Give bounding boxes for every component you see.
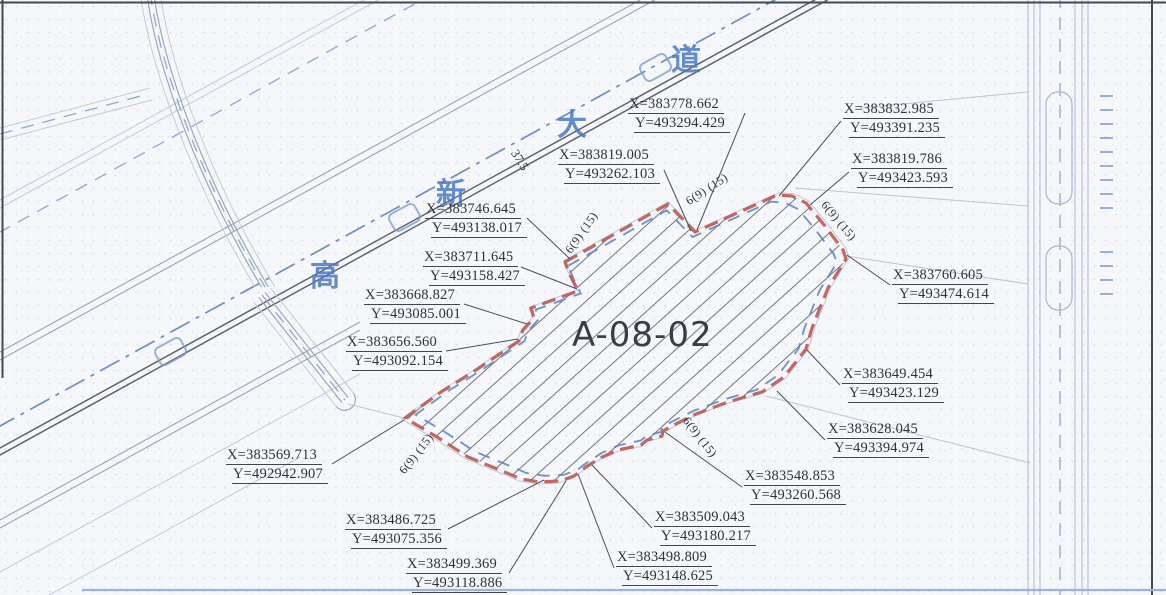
coordinate-y: Y=493260.568 xyxy=(750,486,846,505)
coordinate-label: X=383499.369 Y=493118.886 xyxy=(406,555,507,593)
road-name-char-da: 大 xyxy=(557,100,587,144)
coordinate-x: X=383649.454 xyxy=(842,365,938,384)
east-road-lines xyxy=(1028,0,1113,595)
coordinate-y: Y=493423.593 xyxy=(857,169,953,188)
coordinate-label: X=383569.713 Y=492942.907 xyxy=(226,446,328,484)
coordinate-y: Y=493148.625 xyxy=(622,567,718,586)
coordinate-x: X=383569.713 xyxy=(226,446,322,465)
coordinate-y: Y=493423.129 xyxy=(848,384,944,403)
coordinate-x: X=383832.985 xyxy=(843,100,939,119)
coordinate-x: X=383760.605 xyxy=(892,266,988,285)
median-island xyxy=(1046,246,1072,310)
coordinate-y: Y=493075.356 xyxy=(351,530,447,549)
coordinate-label: X=383509.043 Y=493180.217 xyxy=(654,508,756,546)
coordinate-x: X=383778.662 xyxy=(628,95,724,114)
parcel-id-label: A-08-02 xyxy=(572,315,713,355)
site-plan-drawing: A-08-02 高 新 大 道 37.5 6(9) (15) 6(9) (15)… xyxy=(0,0,1166,595)
coordinate-x: X=383498.809 xyxy=(616,548,712,567)
coordinate-x: X=383486.725 xyxy=(345,511,441,530)
coordinate-y: Y=493158.427 xyxy=(429,267,525,286)
coordinate-x: X=383499.369 xyxy=(406,555,502,574)
coordinate-x: X=383819.786 xyxy=(851,150,947,169)
coordinate-label: X=383628.045 Y=493394.974 xyxy=(827,420,929,458)
stub-road-end-cap xyxy=(336,393,355,410)
coordinate-label: X=383711.645 Y=493158.427 xyxy=(423,248,525,286)
west-branch-road-lines xyxy=(0,88,152,140)
coordinate-y: Y=493391.235 xyxy=(849,119,945,138)
coordinate-y: Y=493138.017 xyxy=(431,219,527,238)
road-name-char-dao: 道 xyxy=(671,35,701,79)
coordinate-label: X=383498.809 Y=493148.625 xyxy=(616,548,718,586)
coordinate-y: Y=493262.103 xyxy=(564,165,660,184)
coordinate-y: Y=493394.974 xyxy=(833,439,929,458)
coordinate-x: X=383711.645 xyxy=(423,248,518,267)
coordinate-y: Y=493085.001 xyxy=(370,305,466,324)
coordinate-y: Y=493294.429 xyxy=(634,114,730,133)
coordinate-x: X=383628.045 xyxy=(827,420,923,439)
coordinate-y: Y=493118.886 xyxy=(412,574,507,593)
coordinate-x: X=383746.645 xyxy=(425,200,521,219)
coordinate-label: X=383778.662 Y=493294.429 xyxy=(628,95,730,133)
coordinate-x: X=383656.560 xyxy=(346,333,442,352)
coordinate-x: X=383509.043 xyxy=(654,508,750,527)
crosswalk-ladder-marks xyxy=(1100,96,1113,294)
coordinate-y: Y=493092.154 xyxy=(352,352,448,371)
coordinate-x: X=383668.827 xyxy=(364,286,460,305)
coordinate-label: X=383819.005 Y=493262.103 xyxy=(558,146,660,184)
coordinate-x: X=383819.005 xyxy=(558,146,654,165)
coordinate-label: X=383668.827 Y=493085.001 xyxy=(364,286,466,324)
median-island xyxy=(1046,92,1072,204)
coordinate-label: X=383819.786 Y=493423.593 xyxy=(851,150,953,188)
coordinate-y: Y=493180.217 xyxy=(660,527,756,546)
coordinate-label: X=383832.985 Y=493391.235 xyxy=(843,100,945,138)
coordinate-x: X=383548.853 xyxy=(744,467,840,486)
coordinate-label: X=383486.725 Y=493075.356 xyxy=(345,511,447,549)
coordinate-label: X=383649.454 Y=493423.129 xyxy=(842,365,944,403)
coordinate-label: X=383656.560 Y=493092.154 xyxy=(346,333,448,371)
road-name-char-gao: 高 xyxy=(310,251,340,295)
coordinate-label: X=383548.853 Y=493260.568 xyxy=(744,467,846,505)
coordinate-label: X=383746.645 Y=493138.017 xyxy=(425,200,527,238)
coordinate-y: Y=492942.907 xyxy=(232,465,328,484)
coordinate-label: X=383760.605 Y=493474.614 xyxy=(892,266,994,304)
coordinate-y: Y=493474.614 xyxy=(898,285,994,304)
